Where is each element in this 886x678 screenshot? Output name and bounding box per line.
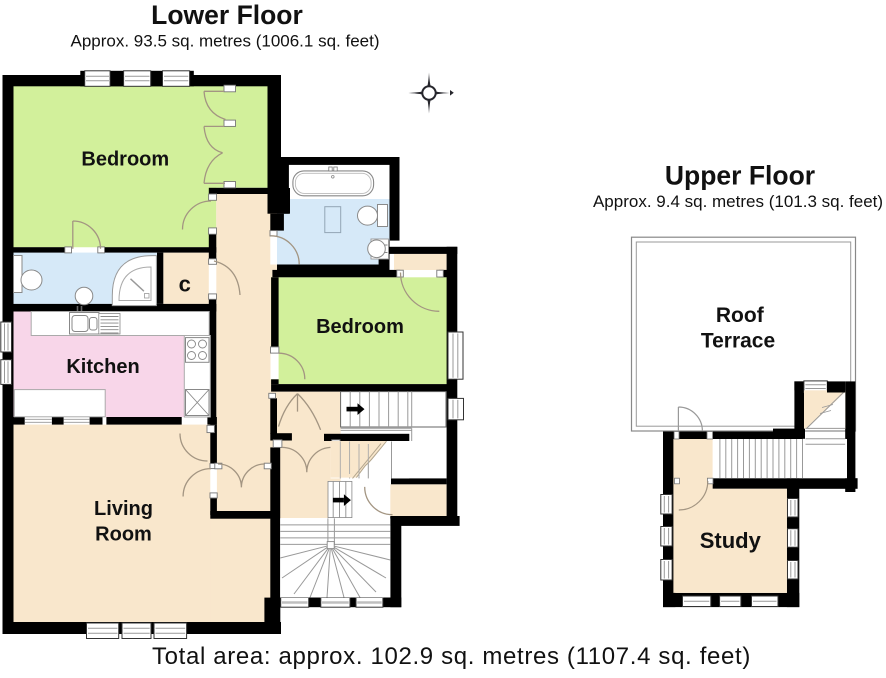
- svg-text:Bedroom: Bedroom: [316, 316, 404, 338]
- svg-text:Bedroom: Bedroom: [81, 149, 169, 171]
- svg-text:Lower Floor: Lower Floor: [151, 0, 303, 30]
- svg-text:Room: Room: [95, 524, 152, 546]
- svg-text:Kitchen: Kitchen: [66, 356, 139, 378]
- svg-text:Roof: Roof: [716, 304, 765, 327]
- svg-text:c: c: [179, 272, 191, 297]
- svg-text:Study: Study: [700, 528, 762, 553]
- svg-text:Living: Living: [94, 498, 153, 520]
- svg-text:Total area: approx. 102.9 sq.: Total area: approx. 102.9 sq. metres (11…: [152, 643, 751, 670]
- svg-text:Upper Floor: Upper Floor: [665, 160, 815, 190]
- svg-text:Approx. 93.5 sq. metres (1006.: Approx. 93.5 sq. metres (1006.1 sq. feet…: [71, 31, 380, 50]
- svg-text:Terrace: Terrace: [701, 330, 775, 353]
- svg-text:Approx. 9.4 sq. metres (101.3: Approx. 9.4 sq. metres (101.3 sq. feet): [593, 192, 883, 211]
